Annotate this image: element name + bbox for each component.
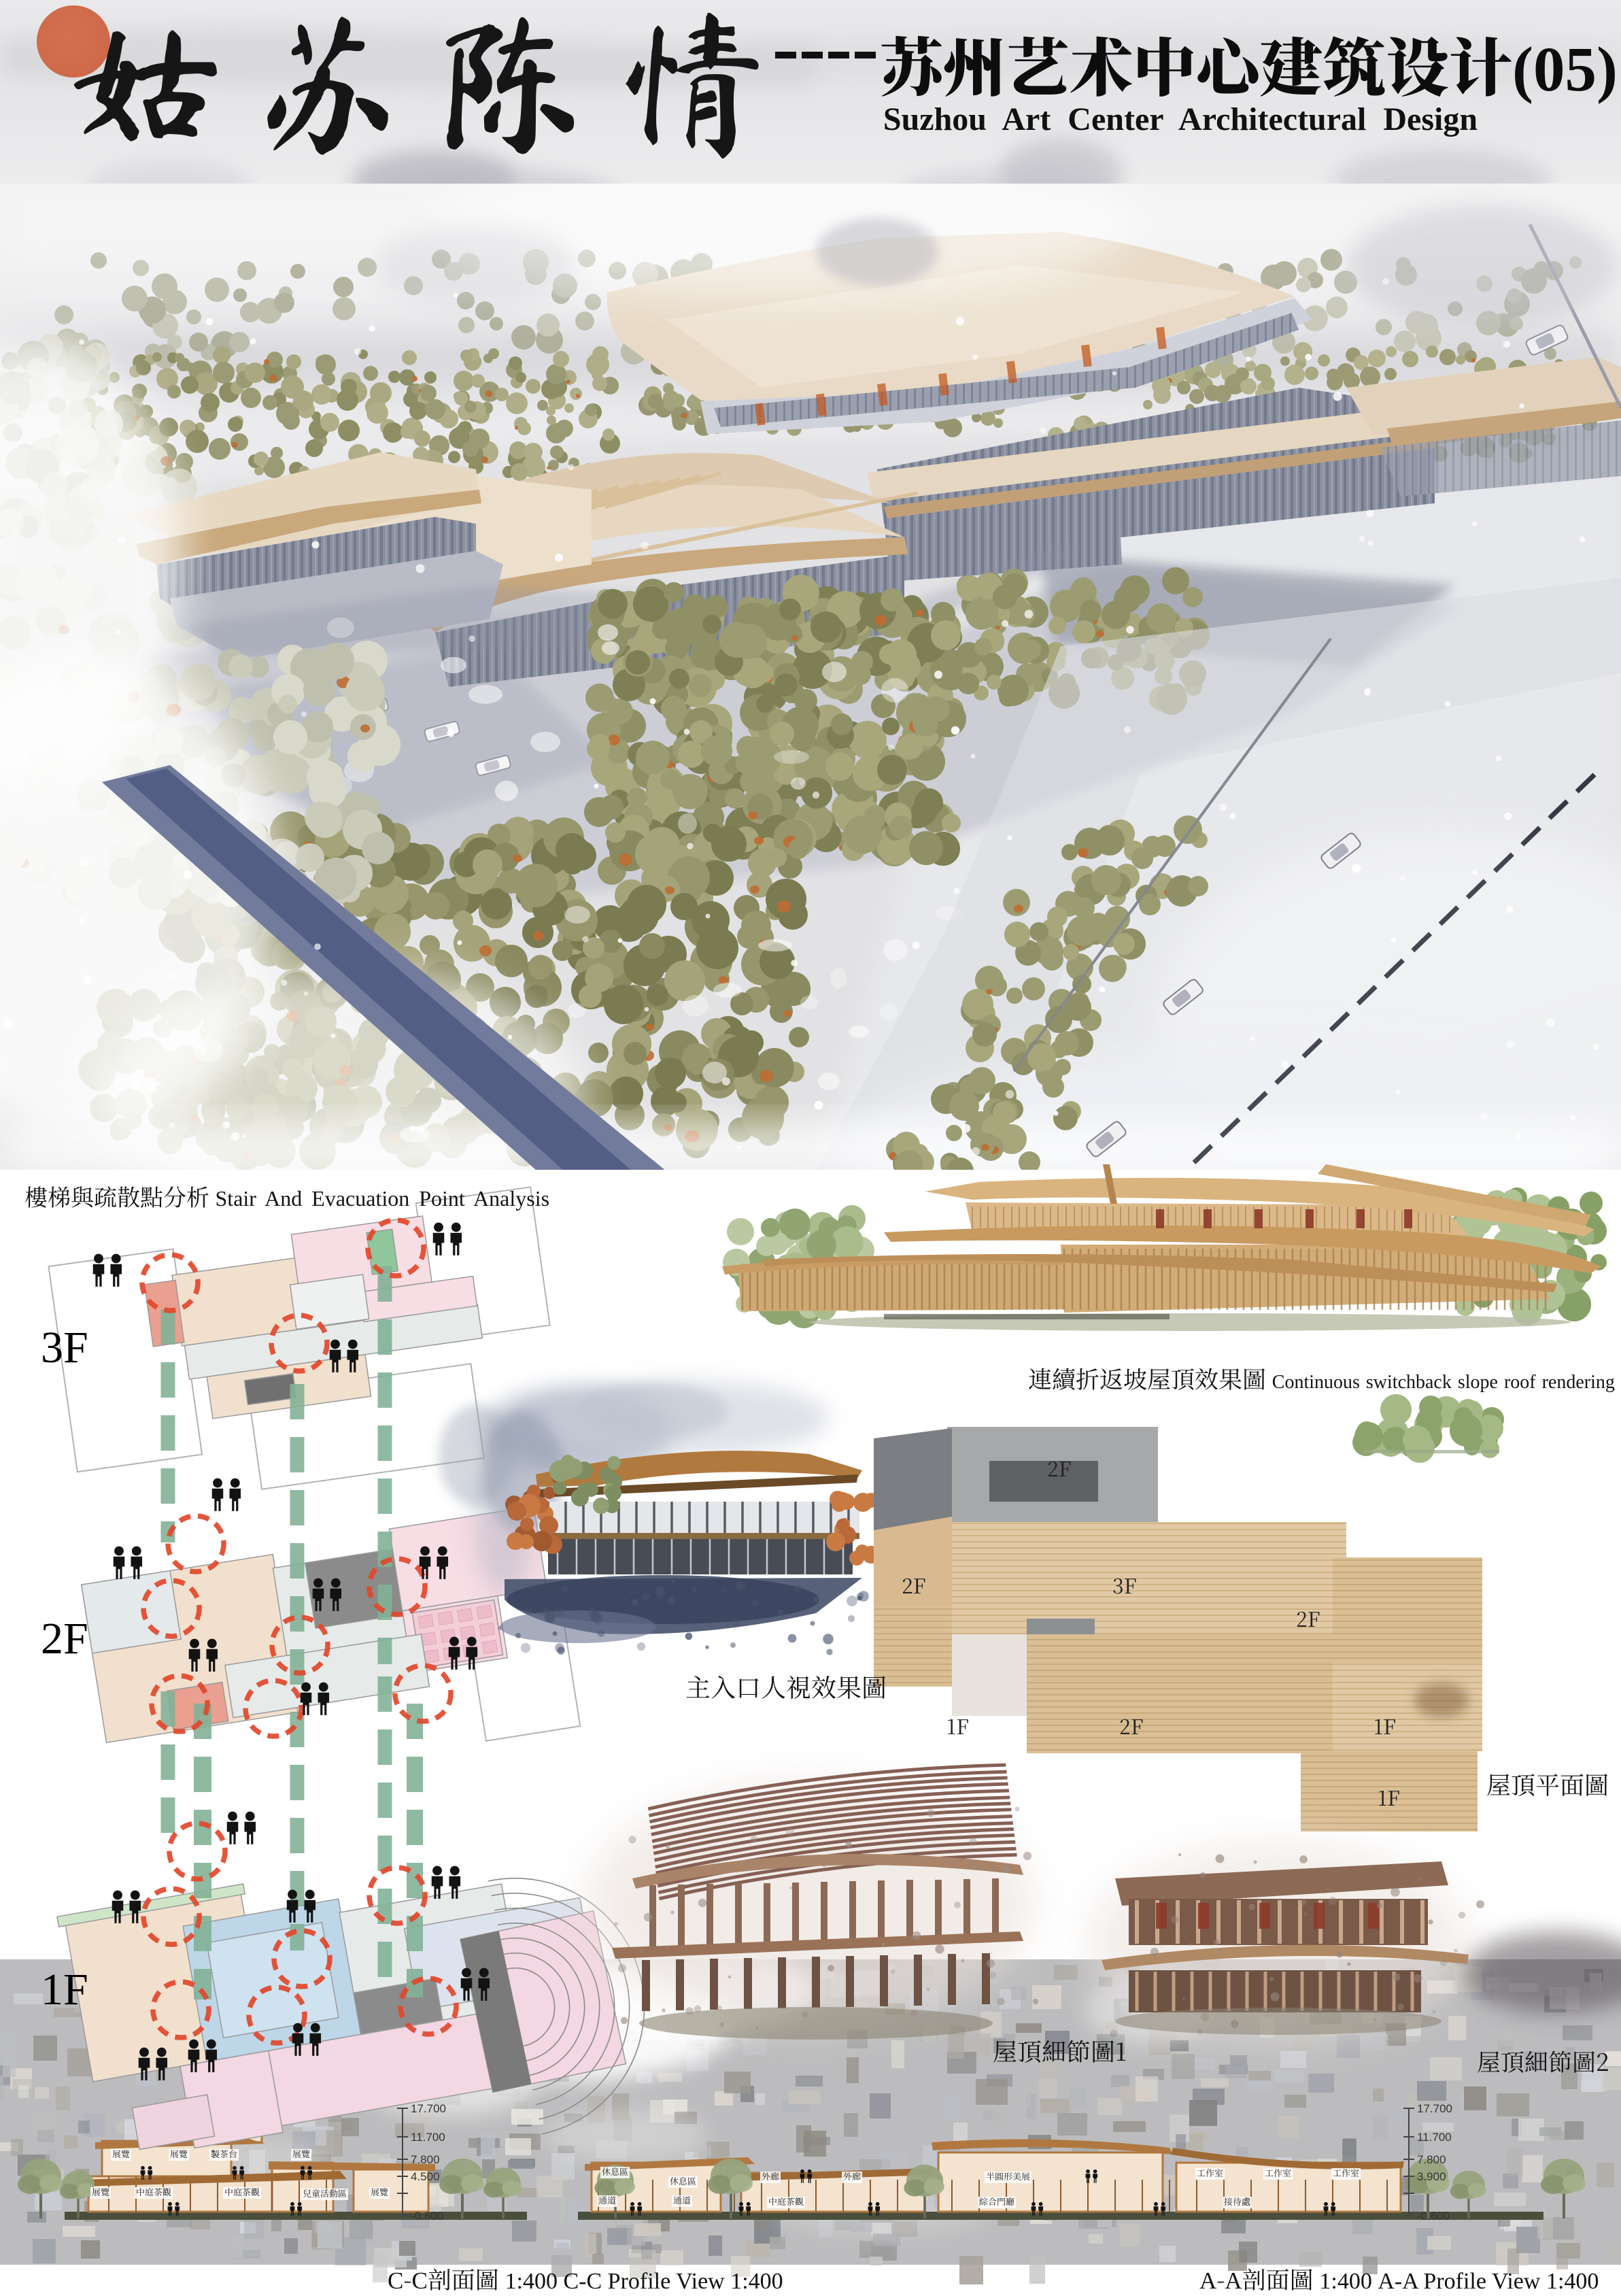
svg-text:製茶台: 製茶台 [211,2147,237,2160]
svg-text:3.900: 3.900 [1417,2170,1446,2183]
svg-text:11.700: 11.700 [1417,2131,1452,2144]
svg-text:展覽: 展覽 [371,2185,388,2198]
svg-text:7.800: 7.800 [1417,2153,1446,2166]
svg-text:中庭茶觀: 中庭茶觀 [136,2185,171,2198]
svg-text:11.700: 11.700 [411,2131,445,2144]
svg-text:休息區: 休息區 [670,2174,696,2187]
svg-text:4.500: 4.500 [411,2170,440,2183]
svg-text:工作室: 工作室 [1197,2166,1223,2179]
svg-text:休息區: 休息區 [602,2165,628,2178]
svg-text:中庭茶觀: 中庭茶觀 [768,2195,804,2208]
svg-text:綜合門廳: 綜合門廳 [979,2195,1014,2208]
svg-text:7.800: 7.800 [411,2153,440,2166]
svg-text:外廊: 外廊 [843,2170,861,2182]
svg-text:展覽: 展覽 [112,2147,130,2160]
svg-text:工作室: 工作室 [1265,2166,1291,2179]
svg-text:通道: 通道 [673,2193,691,2206]
svg-text:17.700: 17.700 [411,2102,446,2115]
svg-text:中庭茶觀: 中庭茶觀 [224,2185,260,2198]
svg-text:外廊: 外廊 [762,2170,779,2182]
svg-text:接待處: 接待處 [1224,2195,1250,2208]
svg-text:展覽: 展覽 [170,2147,188,2160]
svg-text:半圓形美展: 半圓形美展 [986,2170,1030,2182]
svg-text:-0.600: -0.600 [1417,2210,1450,2223]
svg-text:-0.600: -0.600 [411,2210,443,2223]
svg-text:通道: 通道 [598,2193,616,2206]
svg-text:展覽: 展覽 [92,2185,109,2198]
svg-text:展覽: 展覽 [292,2147,310,2160]
svg-text:17.700: 17.700 [1417,2102,1452,2115]
svg-text:工作室: 工作室 [1333,2166,1359,2179]
svg-text:兒童活動區: 兒童活動區 [303,2187,347,2199]
